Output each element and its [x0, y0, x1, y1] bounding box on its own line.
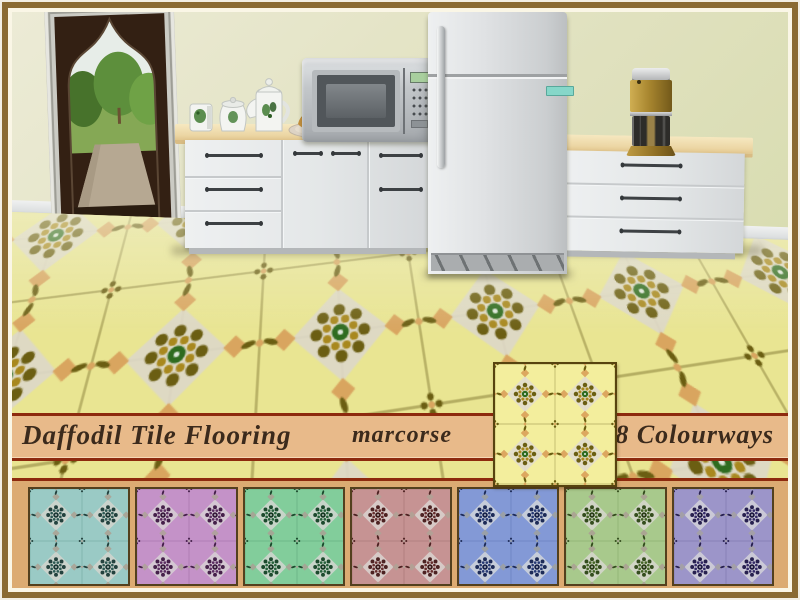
drawer-handle: [623, 163, 681, 167]
cabinet-divider: [367, 140, 369, 248]
arched-window-graphic: [44, 12, 182, 242]
cabinet-divider: [281, 140, 283, 248]
microwave-control-panel: [408, 70, 430, 132]
featured-swatch-daffodil-yellow: [493, 362, 617, 487]
drawer-divider: [185, 176, 281, 178]
flooring-title: Daffodil Tile Flooring: [22, 417, 292, 453]
colourway-swatch-periwinkle: [457, 487, 559, 586]
drawer-divider: [564, 182, 744, 187]
coffee-maker-button: [637, 80, 641, 84]
drawer-handle: [381, 188, 421, 191]
drawer-handle: [207, 188, 261, 191]
microwave-door-frame: [317, 75, 395, 127]
colourway-swatch-row: [28, 487, 774, 586]
kitchen-scene: Daffodil Tile Flooring marcorse 8 Colour…: [12, 12, 788, 588]
kitchen-counter-left: [175, 124, 430, 254]
creator-name: marcorse: [312, 417, 452, 453]
door-handle: [333, 152, 359, 155]
drawer-handle: [621, 229, 679, 233]
arched-window: [44, 12, 182, 242]
coffee-maker-base: [626, 146, 676, 156]
colourways-count: 8 Colourways: [615, 417, 774, 453]
fridge-vent: [431, 253, 564, 271]
microwave-window: [326, 84, 386, 118]
fridge-handle: [437, 26, 445, 168]
drawer-divider: [185, 210, 281, 212]
cabinet-left-body: [185, 140, 430, 248]
door-handle: [295, 152, 321, 155]
colourway-swatch-violet: [672, 487, 774, 586]
coffee-carafe: [632, 116, 670, 146]
drawer-divider: [564, 215, 744, 220]
coffee-maker-body: [630, 80, 672, 112]
kickboard: [189, 248, 426, 254]
coffee-maker: [618, 68, 684, 156]
cc-preview-image: Daffodil Tile Flooring marcorse 8 Colour…: [0, 0, 800, 600]
microwave-keypad: [411, 86, 428, 118]
drawer-handle: [207, 154, 261, 157]
colourway-swatch-rose: [350, 487, 452, 586]
fridge-logo-badge: [546, 86, 574, 96]
drawer-handle: [381, 154, 421, 157]
cabinet-right-body: [563, 150, 745, 253]
colourway-band: [12, 478, 788, 588]
drawer-handle: [622, 196, 680, 200]
colourway-swatch-mint: [243, 487, 345, 586]
drawer-handle: [207, 222, 261, 225]
colourway-swatch-orchid: [135, 487, 237, 586]
freezer-door-gap: [428, 74, 567, 77]
pot-handle: [282, 102, 288, 122]
microwave-open-button: [411, 120, 428, 128]
microwave-door: [312, 70, 400, 132]
colourway-swatch-teal: [28, 487, 130, 586]
microwave: [302, 58, 437, 142]
microwave-display: [410, 72, 429, 83]
colourway-swatch-sage: [564, 487, 666, 586]
refrigerator: [428, 12, 567, 274]
title-banner: Daffodil Tile Flooring marcorse 8 Colour…: [12, 413, 788, 461]
microwave-seam: [403, 68, 405, 134]
